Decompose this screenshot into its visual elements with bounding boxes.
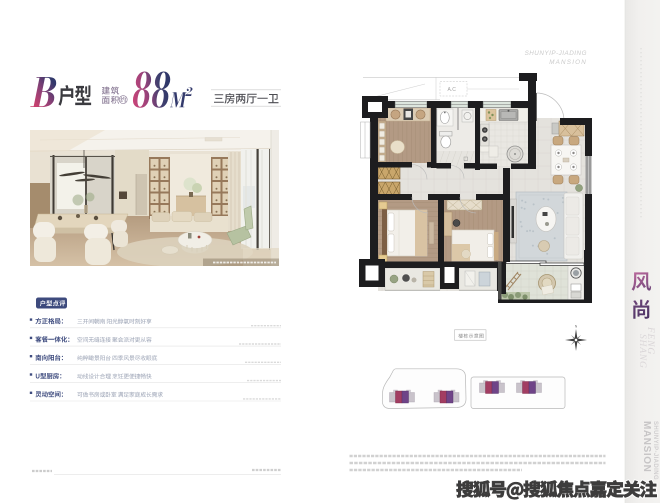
svg-text:A.C: A.C <box>448 87 457 93</box>
svg-text:N: N <box>575 325 578 329</box>
svg-text:SHUNYIP-JIADING: SHUNYIP-JIADING <box>525 50 587 57</box>
svg-text:MANSION: MANSION <box>641 421 652 472</box>
svg-text:MANSION: MANSION <box>549 59 587 66</box>
svg-text:SHANG: SHANG <box>637 334 647 369</box>
